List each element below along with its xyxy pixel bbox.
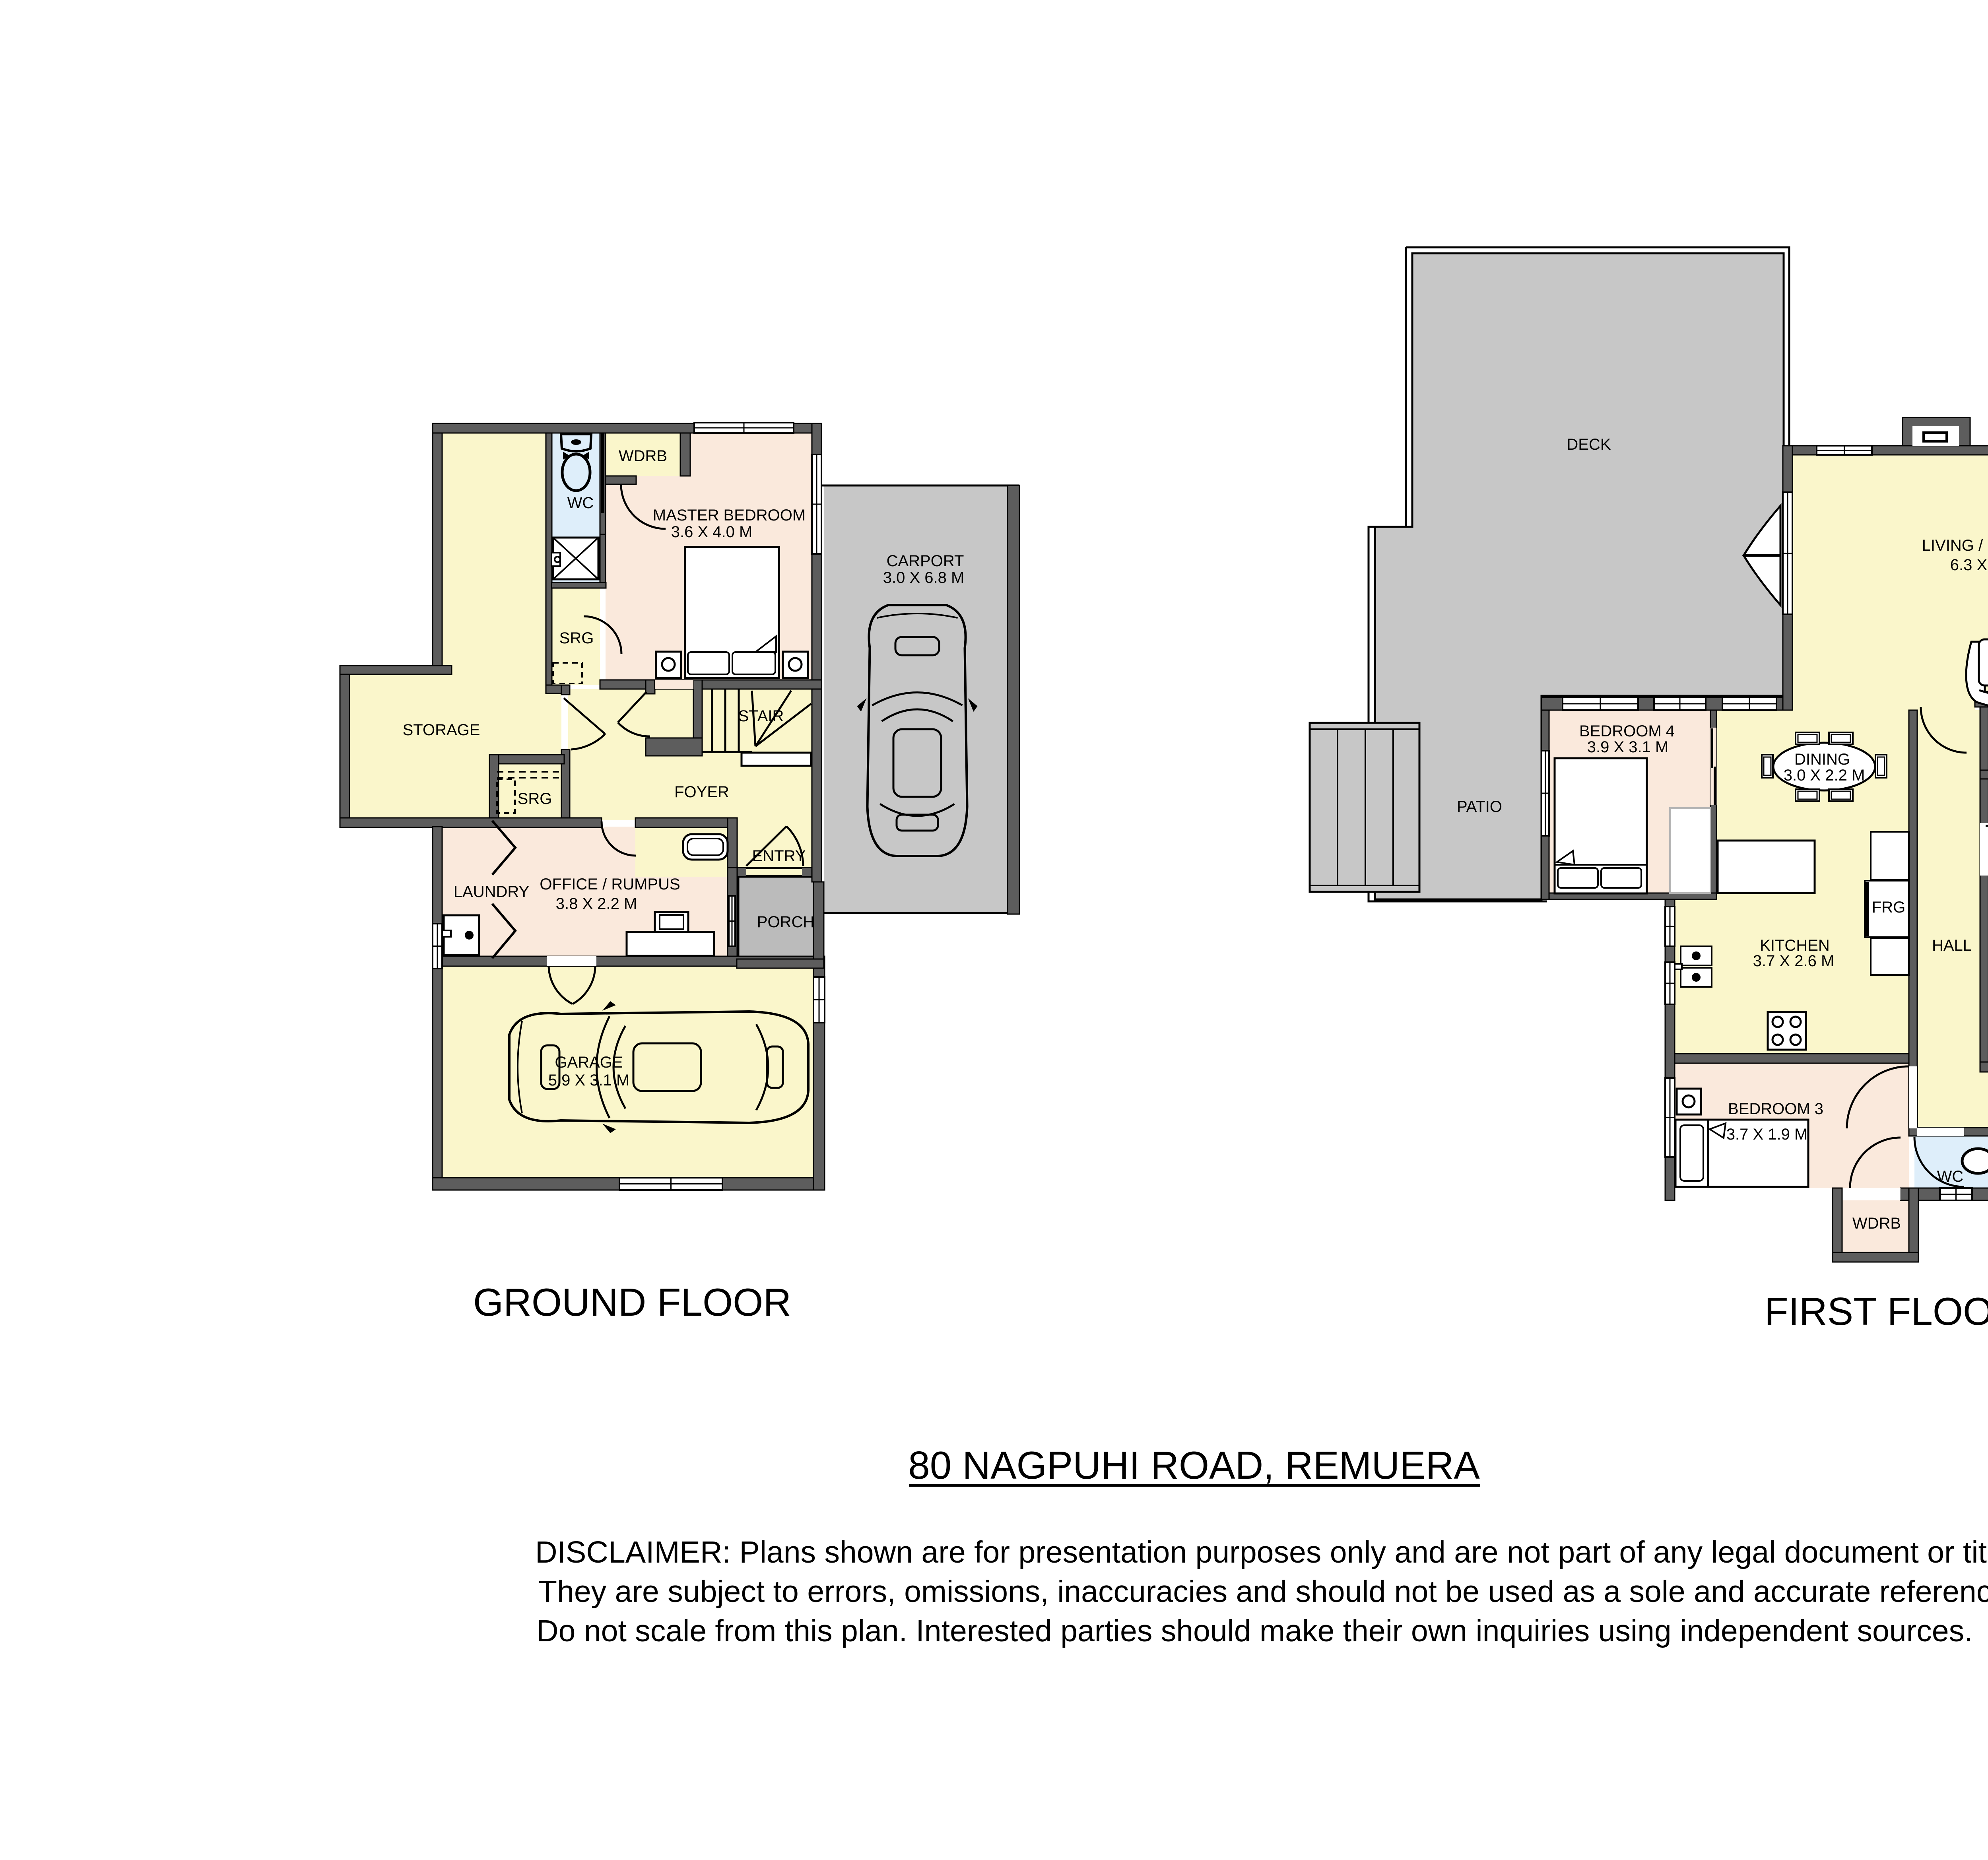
svg-text:DISCLAIMER: Plans shown are fo: DISCLAIMER: Plans shown are for presenta… <box>535 1535 1988 1569</box>
svg-text:80 NAGPUHI ROAD, REMUERA: 80 NAGPUHI ROAD, REMUERA <box>908 1443 1480 1487</box>
svg-text:ENTRY: ENTRY <box>752 847 806 865</box>
svg-text:3.0 X 2.2 M: 3.0 X 2.2 M <box>1784 767 1865 784</box>
svg-text:3.8 X 2.2 M: 3.8 X 2.2 M <box>556 895 637 913</box>
svg-text:3.0 X 6.8 M: 3.0 X 6.8 M <box>883 569 965 586</box>
svg-text:DINING: DINING <box>1794 751 1850 768</box>
svg-text:MASTER BEDROOM: MASTER BEDROOM <box>653 507 806 524</box>
svg-text:3.7 X 2.6 M: 3.7 X 2.6 M <box>1753 952 1835 970</box>
svg-text:BEDROOM 4: BEDROOM 4 <box>1579 722 1675 740</box>
svg-text:FIRST FLOOR: FIRST FLOOR <box>1765 1289 1988 1333</box>
svg-text:They are subject to errors, om: They are subject to errors, omissions, i… <box>538 1575 1988 1609</box>
svg-text:STAIR: STAIR <box>738 707 784 725</box>
svg-text:GROUND FLOOR: GROUND FLOOR <box>473 1280 791 1324</box>
svg-text:FOYER: FOYER <box>674 783 729 801</box>
svg-text:SRG: SRG <box>559 629 594 647</box>
svg-text:SRG: SRG <box>518 790 552 808</box>
svg-text:WDRB: WDRB <box>619 447 667 465</box>
svg-text:Do not scale from this plan. I: Do not scale from this plan. Interested … <box>536 1614 1972 1648</box>
svg-text:WDRB: WDRB <box>1852 1215 1901 1232</box>
svg-text:FRG: FRG <box>1872 899 1905 916</box>
svg-text:GARAGE: GARAGE <box>555 1054 623 1071</box>
svg-text:PATIO: PATIO <box>1457 798 1502 815</box>
svg-text:DECK: DECK <box>1567 436 1611 453</box>
svg-text:LIVING / FAMILY ROOM: LIVING / FAMILY ROOM <box>1922 537 1988 554</box>
svg-text:6.3 X 4.0 M: 6.3 X 4.0 M <box>1950 556 1988 574</box>
svg-text:5.9 X 3.1 M: 5.9 X 3.1 M <box>548 1072 630 1089</box>
svg-text:OFFICE / RUMPUS: OFFICE / RUMPUS <box>540 876 680 893</box>
svg-text:3.9 X 3.1 M: 3.9 X 3.1 M <box>1587 738 1669 756</box>
svg-text:3.6 X 4.0 M: 3.6 X 4.0 M <box>671 523 753 541</box>
svg-text:PORCH: PORCH <box>757 913 814 931</box>
svg-text:WC: WC <box>1937 1168 1964 1185</box>
svg-text:STORAGE: STORAGE <box>403 721 480 739</box>
svg-text:3.7 X 1.9 M: 3.7 X 1.9 M <box>1726 1126 1808 1143</box>
svg-text:BEDROOM 3: BEDROOM 3 <box>1728 1100 1823 1118</box>
svg-text:WC: WC <box>567 494 594 512</box>
svg-text:HALL: HALL <box>1932 937 1972 954</box>
svg-text:CARPORT: CARPORT <box>887 552 964 570</box>
svg-text:KITCHEN: KITCHEN <box>1760 937 1830 954</box>
svg-text:LAUNDRY: LAUNDRY <box>454 883 529 901</box>
